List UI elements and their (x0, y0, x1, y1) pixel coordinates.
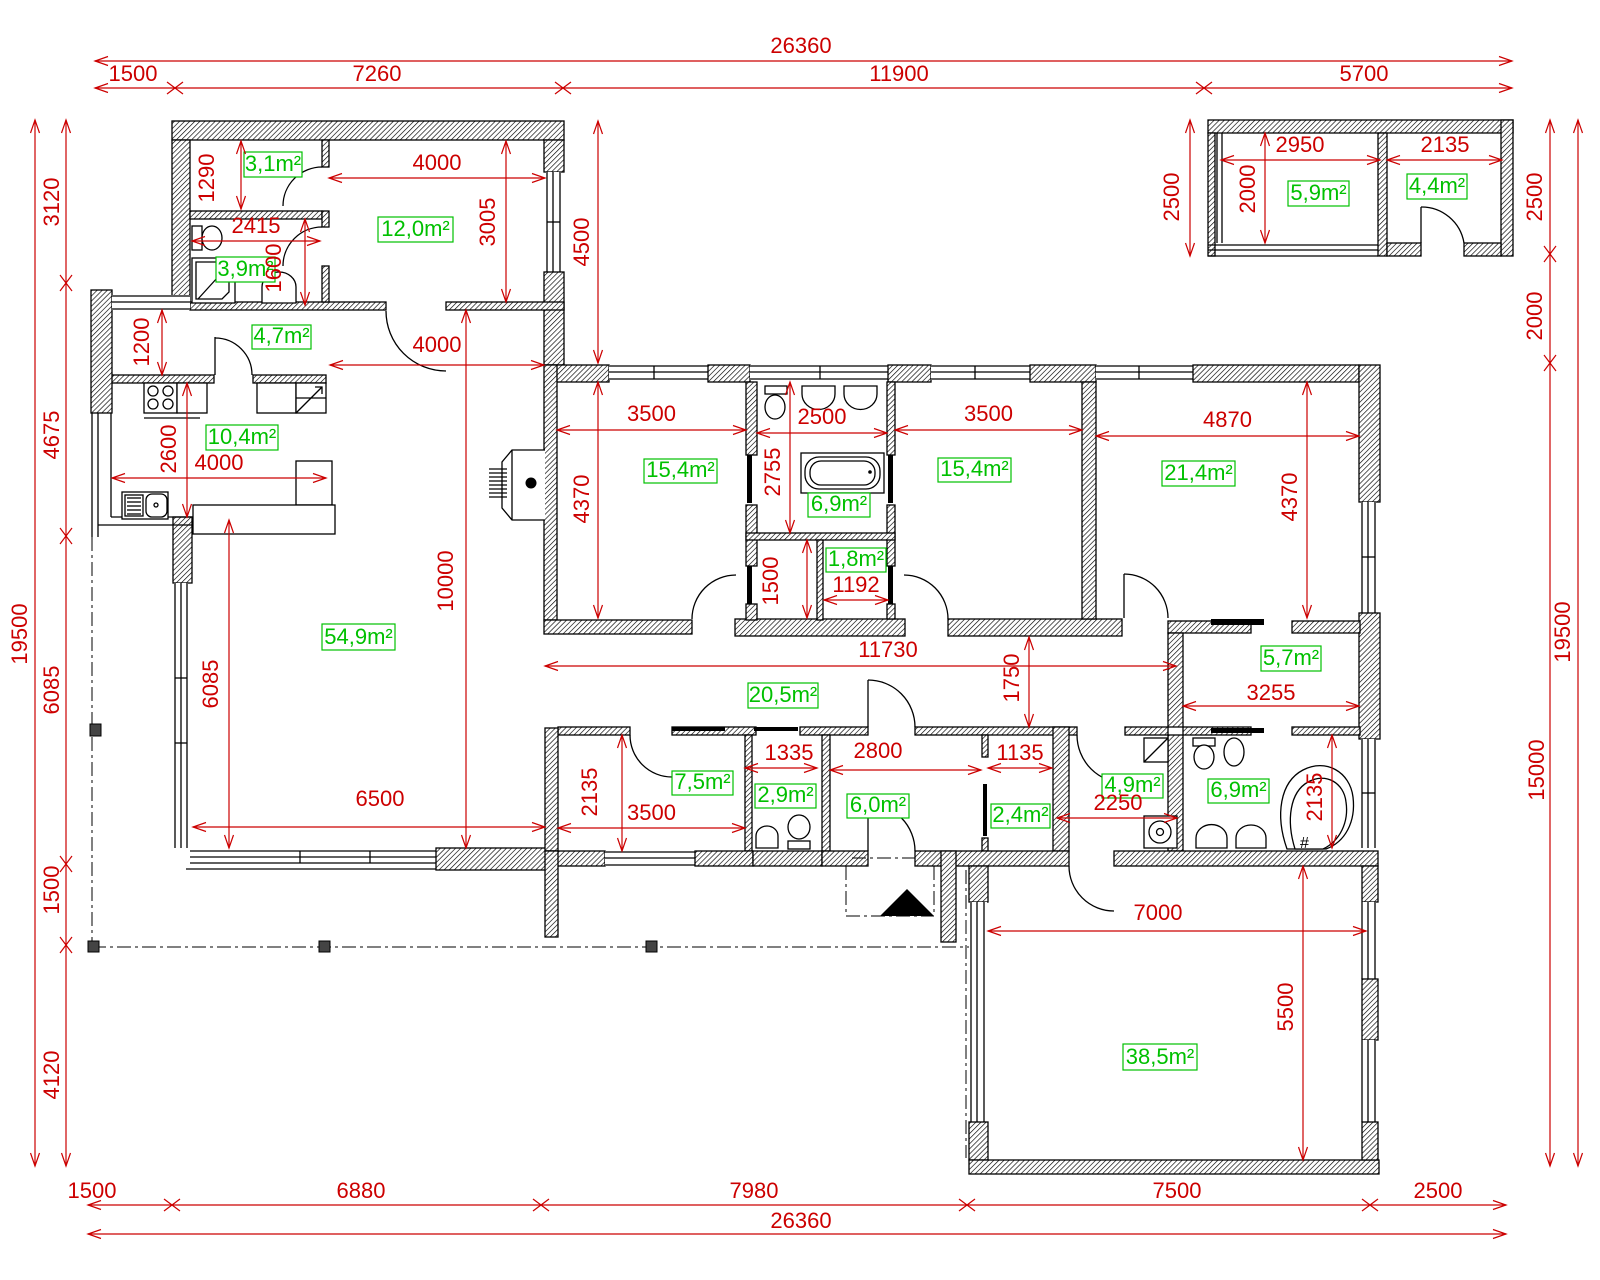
svg-text:5500: 5500 (1273, 983, 1298, 1032)
svg-text:10000: 10000 (433, 550, 458, 611)
svg-text:2500: 2500 (1414, 1178, 1463, 1203)
svg-text:2415: 2415 (232, 213, 281, 238)
svg-text:1500: 1500 (758, 557, 783, 606)
svg-text:4500: 4500 (569, 218, 594, 267)
svg-text:11900: 11900 (869, 61, 929, 86)
svg-text:1192: 1192 (832, 572, 879, 597)
svg-text:6085: 6085 (39, 666, 64, 715)
svg-text:7000: 7000 (1134, 900, 1183, 925)
svg-text:4120: 4120 (39, 1051, 64, 1100)
svg-text:6500: 6500 (356, 786, 405, 811)
svg-text:5700: 5700 (1340, 61, 1389, 86)
svg-text:7260: 7260 (353, 61, 402, 86)
svg-text:26360: 26360 (770, 33, 831, 58)
svg-text:26360: 26360 (770, 1208, 831, 1233)
svg-text:2950: 2950 (1276, 132, 1325, 157)
svg-text:21,4m²: 21,4m² (1164, 460, 1232, 485)
svg-text:10,4m²: 10,4m² (208, 424, 276, 449)
svg-text:1135: 1135 (996, 740, 1043, 765)
svg-text:2250: 2250 (1094, 790, 1143, 815)
svg-text:2600: 2600 (156, 425, 181, 474)
svg-text:15,4m²: 15,4m² (646, 457, 714, 482)
svg-text:2000: 2000 (1522, 292, 1547, 341)
svg-text:4000: 4000 (195, 450, 244, 475)
svg-text:2800: 2800 (854, 738, 903, 763)
svg-text:4,4m²: 4,4m² (1409, 173, 1465, 198)
svg-text:15000: 15000 (1524, 739, 1549, 800)
svg-text:4675: 4675 (39, 411, 64, 460)
svg-text:1335: 1335 (765, 740, 814, 765)
svg-text:1500: 1500 (109, 61, 158, 86)
svg-text:11730: 11730 (858, 637, 918, 662)
svg-text:5,9m²: 5,9m² (1290, 180, 1346, 205)
svg-text:4,7m²: 4,7m² (253, 323, 309, 348)
svg-text:2500: 2500 (798, 404, 847, 429)
svg-text:1,8m²: 1,8m² (828, 546, 884, 571)
svg-text:2000: 2000 (1235, 165, 1260, 214)
svg-text:2755: 2755 (760, 448, 785, 497)
svg-text:6880: 6880 (337, 1178, 386, 1203)
svg-text:3005: 3005 (475, 198, 500, 247)
svg-text:2500: 2500 (1522, 173, 1547, 222)
svg-text:1750: 1750 (999, 654, 1024, 703)
svg-text:1500: 1500 (68, 1178, 117, 1203)
svg-text:19500: 19500 (1550, 601, 1575, 662)
svg-text:2,4m²: 2,4m² (992, 802, 1048, 827)
svg-text:4000: 4000 (413, 150, 462, 175)
svg-text:4370: 4370 (569, 475, 594, 524)
svg-text:54,9m²: 54,9m² (324, 624, 392, 649)
svg-text:2135: 2135 (577, 768, 602, 817)
svg-text:7,5m²: 7,5m² (674, 769, 730, 794)
svg-text:1290: 1290 (194, 154, 219, 203)
svg-text:6085: 6085 (198, 660, 223, 709)
svg-text:4000: 4000 (413, 332, 462, 357)
svg-text:7980: 7980 (730, 1178, 779, 1203)
svg-text:2,9m²: 2,9m² (757, 782, 813, 807)
svg-text:6,9m²: 6,9m² (811, 491, 867, 516)
svg-text:19500: 19500 (7, 603, 32, 664)
svg-text:3500: 3500 (627, 800, 676, 825)
svg-text:2135: 2135 (1421, 132, 1470, 157)
svg-text:3255: 3255 (1247, 680, 1296, 705)
svg-text:#: # (1300, 835, 1309, 852)
svg-text:7500: 7500 (1153, 1178, 1202, 1203)
svg-text:15,4m²: 15,4m² (940, 456, 1008, 481)
svg-text:6,0m²: 6,0m² (850, 792, 906, 817)
svg-text:3,1m²: 3,1m² (245, 151, 301, 176)
svg-text:3500: 3500 (964, 401, 1013, 426)
svg-text:2500: 2500 (1159, 173, 1184, 222)
svg-text:38,5m²: 38,5m² (1126, 1044, 1194, 1069)
svg-text:1600: 1600 (261, 244, 286, 293)
svg-text:1200: 1200 (129, 318, 154, 367)
svg-text:4870: 4870 (1203, 407, 1252, 432)
svg-text:2135: 2135 (1302, 773, 1327, 822)
svg-text:12,0m²: 12,0m² (381, 216, 449, 241)
svg-text:5,7m²: 5,7m² (1263, 645, 1319, 670)
svg-text:4370: 4370 (1277, 473, 1302, 522)
svg-text:6,9m²: 6,9m² (1210, 777, 1266, 802)
svg-text:20,5m²: 20,5m² (749, 682, 817, 707)
svg-text:1500: 1500 (39, 866, 64, 915)
svg-text:3500: 3500 (627, 401, 676, 426)
svg-text:3120: 3120 (39, 178, 64, 227)
